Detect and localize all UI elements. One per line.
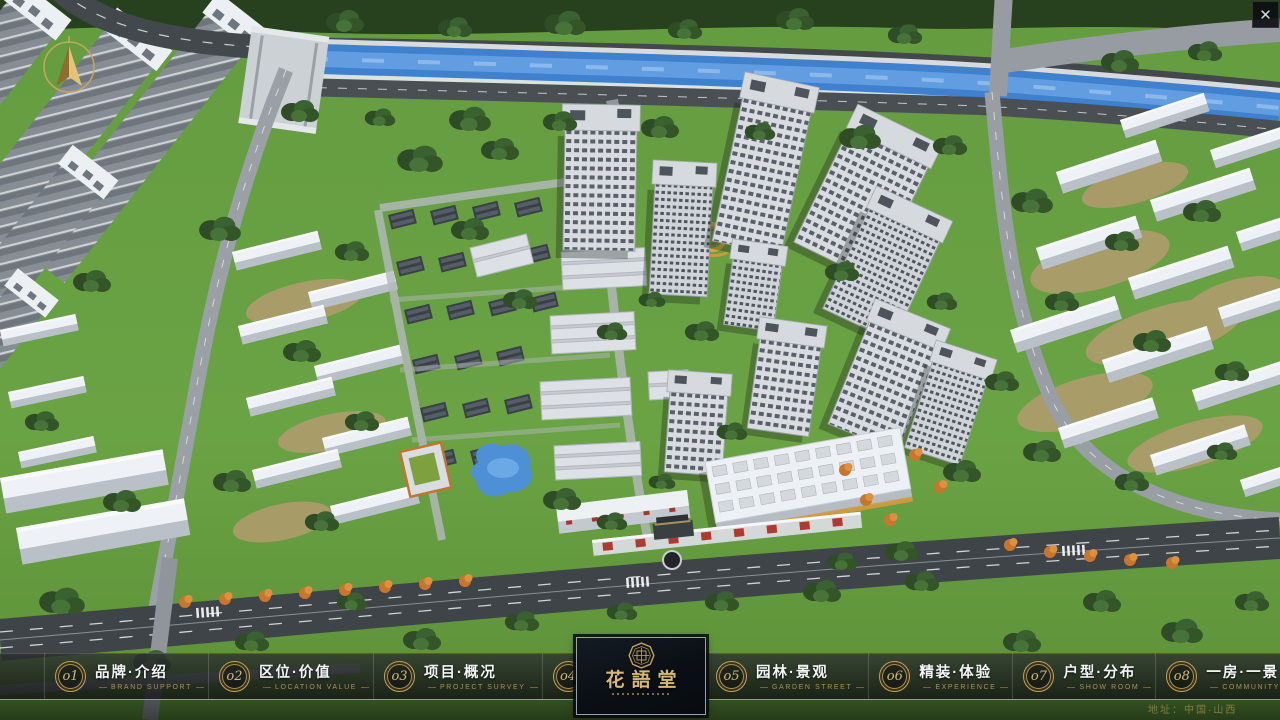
nav-label-en: BRAND SUPPORT	[95, 684, 208, 691]
nav-item-floorplan-distribution[interactable]: o7 户型·分布SHOW ROOM	[1013, 653, 1156, 699]
nav-label-zh: 精装·体验	[919, 661, 1012, 682]
nav-badge-03: o3	[384, 661, 415, 692]
nav-label-zh: 一房·一景	[1206, 661, 1280, 682]
north-arrow-compass[interactable]	[38, 34, 100, 96]
school-building	[400, 443, 451, 497]
nav-group-left: o1 品牌·介绍BRAND SUPPORT o2 区位·价值LOCATION V…	[44, 653, 576, 699]
nav-badge-08: o8	[1166, 661, 1197, 692]
nav-item-location-value[interactable]: o2 区位·价值LOCATION VALUE	[209, 653, 374, 699]
nav-label-en: EXPERIENCE	[919, 684, 1012, 691]
site-aerial-map[interactable]	[0, 0, 1280, 720]
nav-badge-07: o7	[1023, 661, 1054, 692]
nav-label-en: GARDEN STREET	[756, 684, 868, 691]
compass-needle-light	[69, 46, 82, 86]
nav-badge-06: o6	[879, 661, 910, 692]
nav-item-brand-intro[interactable]: o1 品牌·介绍BRAND SUPPORT	[44, 653, 209, 699]
nav-label-zh: 园林·景观	[756, 661, 868, 682]
nav-item-project-survey[interactable]: o3 项目·概况PROJECT SURVEY	[374, 653, 543, 699]
nav-label-zh: 品牌·介绍	[95, 661, 208, 682]
nav-label-zh: 户型·分布	[1063, 661, 1155, 682]
nav-label-zh: 项目·概况	[424, 661, 542, 682]
nav-item-interior-experience[interactable]: o6 精装·体验EXPERIENCE	[869, 653, 1013, 699]
nav-item-room-view[interactable]: o8 一房·一景COMMUNITY	[1156, 653, 1280, 699]
nav-label-zh: 区位·价值	[259, 661, 373, 682]
project-logo[interactable]: 花語堂	[576, 637, 706, 715]
nav-label-en: COMMUNITY	[1206, 684, 1280, 691]
nav-group-right: o5 园林·景观GARDEN STREET o6 精装·体验EXPERIENCE…	[706, 653, 1246, 699]
project-address: 地址：中国·山西	[1148, 701, 1237, 716]
nav-label-en: SHOW ROOM	[1063, 684, 1155, 691]
project-name: 花語堂	[605, 669, 683, 691]
seal-emblem-icon	[628, 642, 655, 669]
presentation-window: ✕ 地址：中国·山西 o1 品牌·介绍BRAND SUPPORT o2 区位·价…	[0, 0, 1280, 720]
nav-item-garden-landscape[interactable]: o5 园林·景观GARDEN STREET	[706, 653, 869, 699]
nav-badge-01: o1	[55, 661, 86, 692]
nav-badge-05: o5	[716, 661, 747, 692]
logo-caption-rule	[612, 693, 670, 695]
nav-label-en: LOCATION VALUE	[259, 684, 373, 691]
entrance-gate	[652, 514, 694, 540]
close-button[interactable]: ✕	[1252, 1, 1279, 28]
compass-needle-dark	[56, 46, 69, 86]
nav-label-en: PROJECT SURVEY	[424, 684, 542, 691]
nav-badge-02: o2	[219, 661, 250, 692]
pond	[471, 444, 532, 496]
